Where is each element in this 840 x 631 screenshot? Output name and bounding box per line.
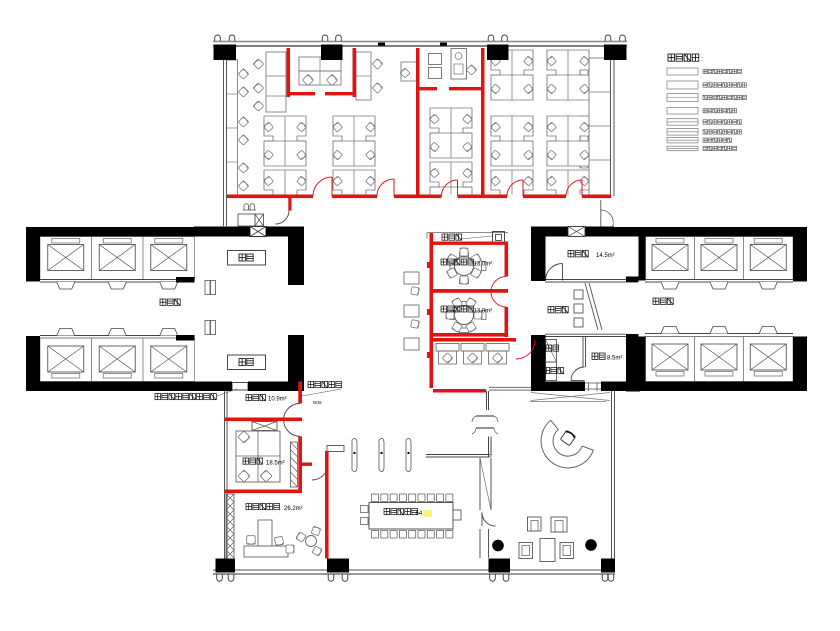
svg-text:14.5m²: 14.5m² [596,253,615,259]
svg-text:W15: W15 [313,400,322,405]
svg-text:13.0m²: 13.0m² [474,262,493,268]
svg-text:26.2m²: 26.2m² [284,506,303,512]
svg-text:10.9m²: 10.9m² [268,397,287,403]
svg-text::: : [701,56,703,63]
svg-text:64: 64 [416,511,423,517]
svg-text:8.5m²: 8.5m² [607,356,622,362]
svg-text:13.0m²: 13.0m² [474,309,493,315]
svg-text:18.5m²: 18.5m² [266,461,285,467]
